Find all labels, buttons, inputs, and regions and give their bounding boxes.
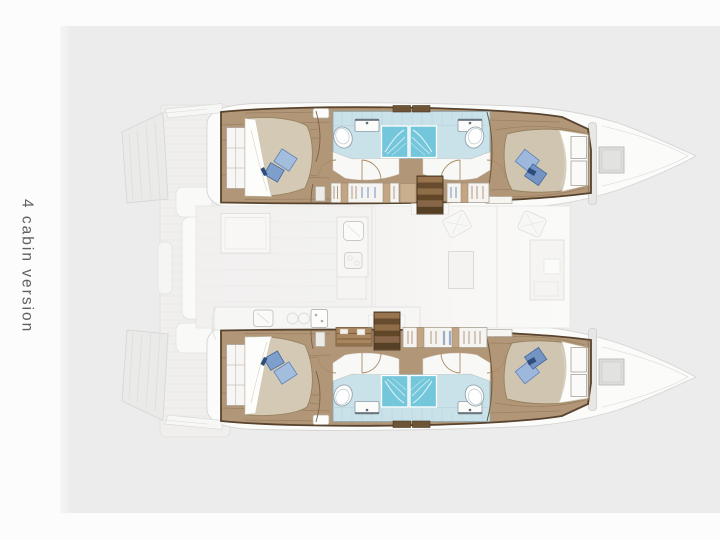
svg-text:4 cabin version: 4 cabin version (19, 199, 36, 333)
